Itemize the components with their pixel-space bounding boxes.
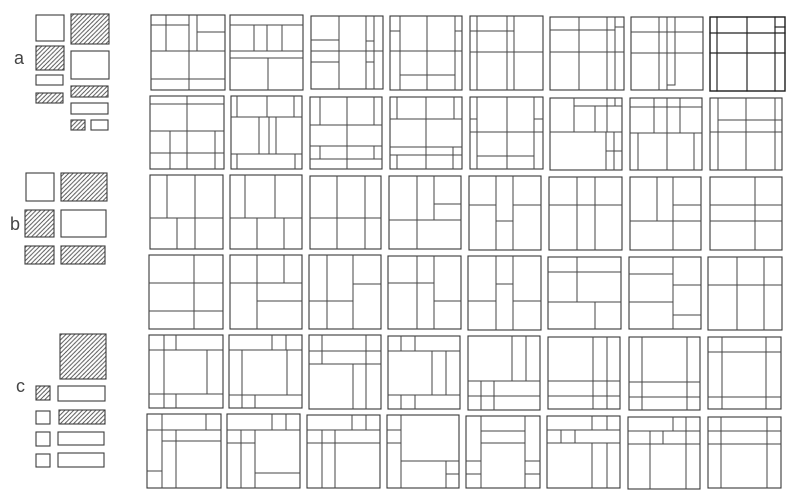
svg-text:b: b xyxy=(10,214,20,234)
svg-text:a: a xyxy=(14,48,25,68)
svg-text:c: c xyxy=(16,376,25,396)
